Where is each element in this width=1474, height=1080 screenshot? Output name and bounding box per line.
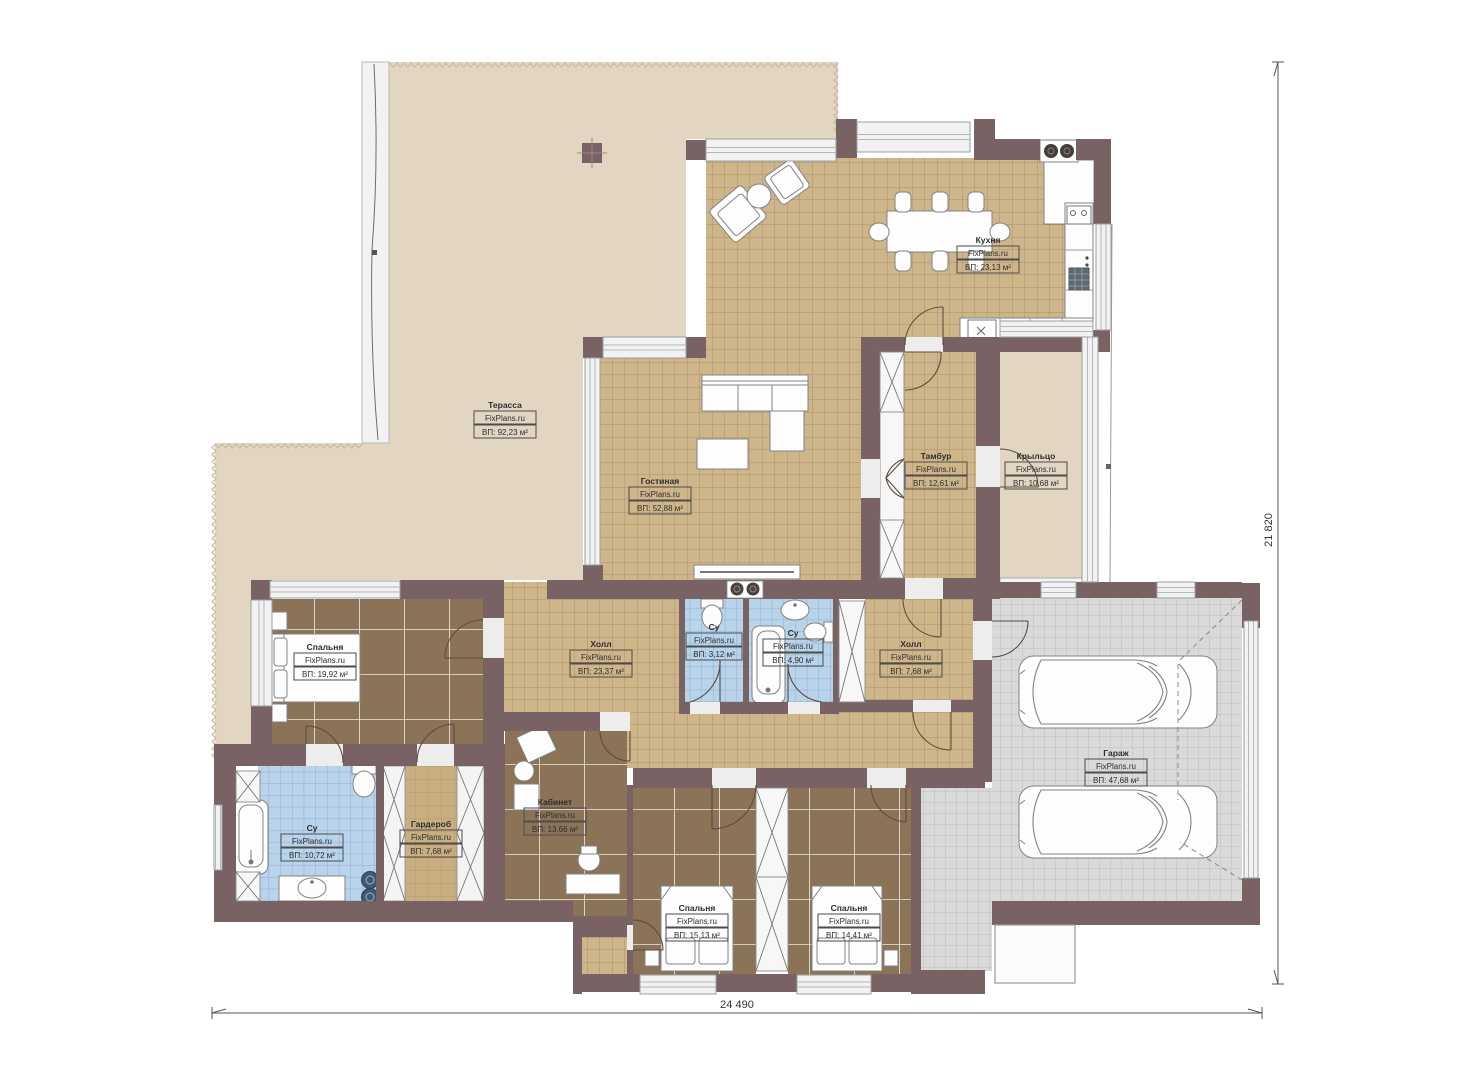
svg-text:ВП: 7,68 м²: ВП: 7,68 м² (410, 847, 452, 856)
svg-text:Кабинет: Кабинет (538, 797, 572, 807)
svg-text:FixPlans.ru: FixPlans.ru (1016, 465, 1056, 474)
svg-text:FixPlans.ru: FixPlans.ru (829, 917, 869, 926)
svg-text:ВП: 15,13 м²: ВП: 15,13 м² (674, 931, 720, 940)
svg-text:ВП: 4,90 м²: ВП: 4,90 м² (772, 656, 814, 665)
svg-text:21 820: 21 820 (1263, 513, 1275, 547)
svg-text:Терасса: Терасса (488, 400, 522, 410)
svg-text:FixPlans.ru: FixPlans.ru (640, 490, 680, 499)
svg-text:ВП: 14,41 м²: ВП: 14,41 м² (826, 931, 872, 940)
svg-text:FixPlans.ru: FixPlans.ru (292, 837, 332, 846)
svg-text:FixPlans.ru: FixPlans.ru (535, 811, 575, 820)
svg-text:ВП: 7,68 м²: ВП: 7,68 м² (890, 667, 932, 676)
svg-text:FixPlans.ru: FixPlans.ru (916, 465, 956, 474)
svg-text:ВП: 10,68 м²: ВП: 10,68 м² (1013, 479, 1059, 488)
svg-text:FixPlans.ru: FixPlans.ru (581, 653, 621, 662)
svg-text:FixPlans.ru: FixPlans.ru (305, 656, 345, 665)
svg-text:Су: Су (307, 823, 318, 833)
svg-text:Холл: Холл (590, 639, 611, 649)
svg-text:FixPlans.ru: FixPlans.ru (773, 642, 813, 651)
svg-text:ВП: 12,61 м²: ВП: 12,61 м² (913, 479, 959, 488)
svg-text:Су: Су (788, 628, 799, 638)
svg-text:Гардероб: Гардероб (411, 819, 451, 829)
svg-text:Спальня: Спальня (831, 903, 868, 913)
svg-text:Крыльцо: Крыльцо (1017, 451, 1056, 461)
svg-text:ВП: 92,23 м²: ВП: 92,23 м² (482, 428, 528, 437)
svg-text:ВП: 13,66 м²: ВП: 13,66 м² (532, 825, 578, 834)
svg-text:FixPlans.ru: FixPlans.ru (411, 833, 451, 842)
svg-text:ВП: 23,13 м²: ВП: 23,13 м² (965, 263, 1011, 272)
svg-text:FixPlans.ru: FixPlans.ru (485, 414, 525, 423)
svg-text:ВП: 10,72 м²: ВП: 10,72 м² (289, 851, 335, 860)
svg-text:Тамбур: Тамбур (921, 451, 952, 461)
svg-text:ВП: 47,68 м²: ВП: 47,68 м² (1093, 776, 1139, 785)
svg-text:FixPlans.ru: FixPlans.ru (694, 636, 734, 645)
svg-text:ВП: 52,88 м²: ВП: 52,88 м² (637, 504, 683, 513)
svg-text:FixPlans.ru: FixPlans.ru (968, 249, 1008, 258)
svg-text:Кухня: Кухня (976, 235, 1001, 245)
svg-text:ВП: 23,37 м²: ВП: 23,37 м² (578, 667, 624, 676)
svg-text:Су: Су (709, 622, 720, 632)
svg-text:ВП: 19,92 м²: ВП: 19,92 м² (302, 670, 348, 679)
svg-text:ВП: 3,12 м²: ВП: 3,12 м² (693, 650, 735, 659)
svg-text:24 490: 24 490 (720, 999, 754, 1011)
svg-text:Спальня: Спальня (679, 903, 716, 913)
svg-text:FixPlans.ru: FixPlans.ru (891, 653, 931, 662)
svg-text:Спальня: Спальня (307, 642, 344, 652)
svg-text:Гостиная: Гостиная (641, 476, 679, 486)
svg-text:FixPlans.ru: FixPlans.ru (1096, 762, 1136, 771)
svg-text:FixPlans.ru: FixPlans.ru (677, 917, 717, 926)
svg-text:Холл: Холл (900, 639, 921, 649)
svg-text:Гараж: Гараж (1103, 748, 1129, 758)
